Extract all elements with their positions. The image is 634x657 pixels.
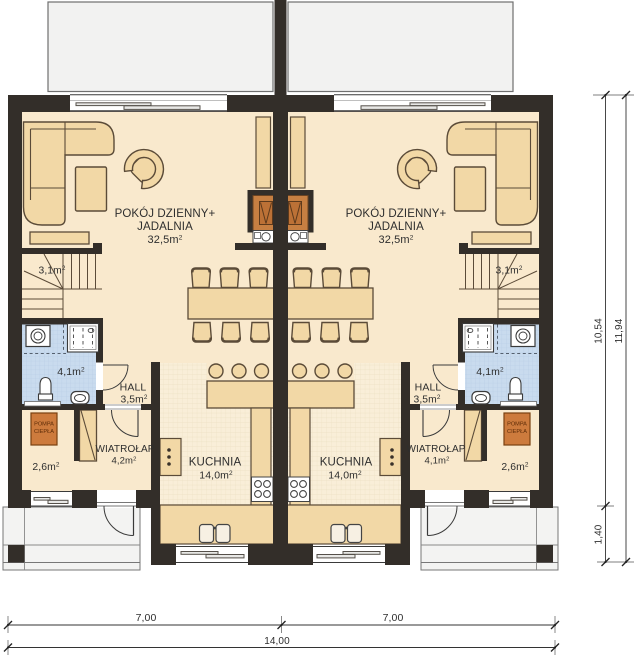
- svg-text:32,5m2: 32,5m2: [148, 234, 183, 246]
- svg-text:7,00: 7,00: [383, 612, 404, 624]
- svg-text:4,1m2: 4,1m2: [476, 366, 504, 378]
- svg-text:HALL: HALL: [415, 382, 442, 394]
- svg-text:14,0m2: 14,0m2: [328, 470, 362, 482]
- svg-text:POKÓJ DZIENNY+: POKÓJ DZIENNY+: [346, 207, 447, 220]
- svg-text:14,0m2: 14,0m2: [199, 470, 233, 482]
- svg-text:2,6m2: 2,6m2: [501, 462, 529, 473]
- svg-text:JADALNIA: JADALNIA: [368, 221, 424, 233]
- svg-text:3,5m2: 3,5m2: [121, 394, 148, 405]
- svg-text:POKÓJ DZIENNY+: POKÓJ DZIENNY+: [115, 207, 216, 220]
- svg-text:14,00: 14,00: [264, 636, 290, 647]
- svg-text:KUCHNIA: KUCHNIA: [320, 457, 373, 469]
- svg-text:HALL: HALL: [120, 382, 147, 394]
- svg-text:4,1m2: 4,1m2: [57, 366, 85, 378]
- svg-text:3,1m2: 3,1m2: [39, 265, 66, 276]
- svg-text:7,00: 7,00: [136, 612, 157, 624]
- svg-text:4,1m2: 4,1m2: [425, 456, 450, 467]
- svg-text:KUCHNIA: KUCHNIA: [189, 457, 242, 469]
- svg-text:WIATROŁAP: WIATROŁAP: [406, 444, 465, 455]
- svg-text:32,5m2: 32,5m2: [379, 234, 414, 246]
- svg-text:4,2m2: 4,2m2: [112, 456, 137, 467]
- svg-text:2,6m2: 2,6m2: [32, 462, 60, 473]
- svg-text:10,54: 10,54: [594, 318, 605, 344]
- svg-text:CIEPŁA: CIEPŁA: [34, 429, 54, 435]
- svg-text:11,94: 11,94: [614, 318, 625, 343]
- svg-text:JADALNIA: JADALNIA: [137, 221, 193, 233]
- svg-text:WIATROŁAP: WIATROŁAP: [95, 444, 154, 455]
- svg-text:3,5m2: 3,5m2: [414, 394, 441, 405]
- svg-text:1,40: 1,40: [594, 524, 605, 544]
- svg-text:POMPA: POMPA: [507, 422, 527, 428]
- svg-text:3,1m2: 3,1m2: [496, 265, 523, 276]
- svg-text:POMPA: POMPA: [34, 422, 54, 428]
- svg-text:CIEPŁA: CIEPŁA: [507, 429, 527, 435]
